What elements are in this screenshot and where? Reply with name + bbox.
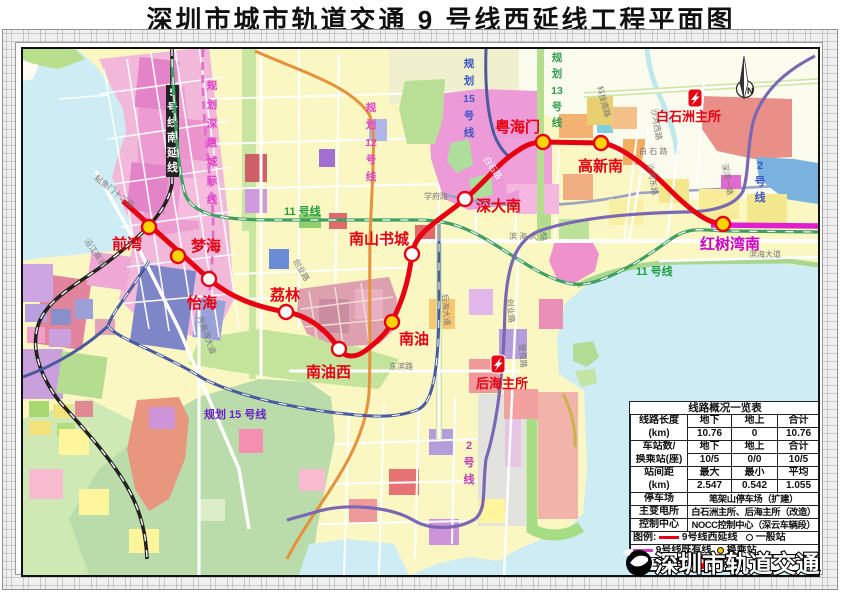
svg-text:11 号线: 11 号线 [284,204,321,218]
svg-text:线: 线 [552,116,563,129]
svg-text:南山书城: 南山书城 [349,230,409,248]
svg-text:东滨路: 东滨路 [389,361,413,371]
svg-text:号: 号 [366,154,377,166]
svg-text:号: 号 [464,110,475,122]
svg-text:梦海: 梦海 [191,237,221,255]
svg-text:规: 规 [207,79,218,92]
svg-text:13: 13 [551,85,563,97]
svg-text:滨 海 大 道: 滨 海 大 道 [509,231,548,241]
svg-text:线: 线 [755,190,766,204]
svg-text:规: 规 [552,51,563,64]
svg-text:前湾: 前湾 [112,235,142,253]
svg-text:号: 号 [552,101,563,113]
svg-text:白石洲主所: 白石洲主所 [656,109,721,124]
svg-text:创业路: 创业路 [505,298,517,323]
svg-text:15: 15 [463,93,475,105]
svg-text:线: 线 [366,170,377,183]
svg-text:划: 划 [366,118,377,131]
svg-text:12: 12 [365,137,377,149]
svg-text:线: 线 [464,126,475,139]
svg-text:荔林: 荔林 [270,286,301,304]
svg-text:N: N [747,86,754,96]
svg-text:高新南: 高新南 [578,157,623,175]
svg-text:南油西: 南油西 [306,363,351,381]
svg-text:规: 规 [464,57,475,70]
svg-text:线: 线 [167,160,178,174]
svg-text:2: 2 [466,440,472,452]
svg-text:号: 号 [755,175,766,188]
svg-text:号: 号 [464,456,475,469]
svg-text:白 石 路: 白 石 路 [639,146,667,156]
svg-text:深圳市轨道交通: 深圳市轨道交通 [655,550,820,577]
svg-text:登良路: 登良路 [517,343,529,368]
svg-text:划: 划 [552,67,563,80]
svg-text:线: 线 [207,193,218,206]
svg-text:规划 15 号线: 规划 15 号线 [204,407,266,421]
svg-text:线: 线 [464,472,475,486]
svg-text:南油: 南油 [399,330,429,348]
svg-text:11 号线: 11 号线 [636,264,673,278]
svg-text:划: 划 [464,74,475,87]
svg-text:划: 划 [207,98,218,111]
svg-text:滨海大道: 滨海大道 [749,249,781,259]
svg-text:怡海: 怡海 [187,294,217,312]
svg-text:粤海门: 粤海门 [495,118,540,136]
svg-text:深大南: 深大南 [476,197,521,215]
svg-text:后海主所: 后海主所 [476,376,528,391]
svg-text:深: 深 [207,117,218,130]
svg-text:惠: 惠 [207,136,218,149]
svg-text:际: 际 [207,175,218,187]
svg-text:2: 2 [757,160,763,172]
svg-text:规: 规 [366,101,377,114]
svg-text:城: 城 [207,155,218,168]
svg-text:学府路: 学府路 [424,191,448,201]
